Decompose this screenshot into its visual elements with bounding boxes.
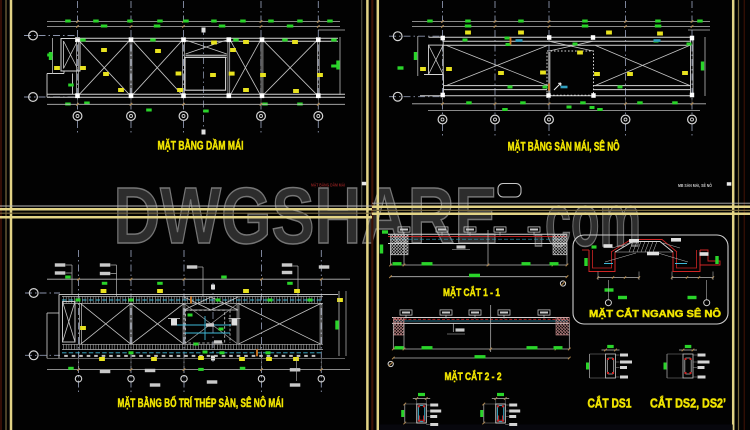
svg-text:MB SÀN MÁI, SÊ NÔ: MB SÀN MÁI, SÊ NÔ bbox=[678, 181, 712, 188]
svg-text:CẮT DS2, DS2’: CẮT DS2, DS2’ bbox=[650, 396, 726, 411]
svg-text:MẶT BẰNG DẦM MÁI: MẶT BẰNG DẦM MÁI bbox=[158, 140, 244, 153]
svg-text:CẮT DS1: CẮT DS1 bbox=[588, 396, 632, 411]
svg-text:MẶT CẮT NGANG SÊ NÔ: MẶT CẮT NGANG SÊ NÔ bbox=[589, 307, 721, 320]
svg-text:MẶT BẰNG SÀN MÁI, SÊ NÔ: MẶT BẰNG SÀN MÁI, SÊ NÔ bbox=[508, 141, 620, 154]
svg-text:MẶT BẰNG BỐ TRÍ THÉP SÀN, SÊ N: MẶT BẰNG BỐ TRÍ THÉP SÀN, SÊ NÔ MÁI bbox=[118, 396, 284, 410]
svg-text:MẶT BẰNG DẦM MÁI: MẶT BẰNG DẦM MÁI bbox=[311, 181, 345, 188]
svg-text:MẶT CẮT 1 - 1: MẶT CẮT 1 - 1 bbox=[443, 286, 500, 299]
svg-text:MẶT CẮT 2 - 2: MẶT CẮT 2 - 2 bbox=[445, 370, 502, 383]
svg-text:DWGSHARE: DWGSHARE bbox=[114, 171, 498, 260]
